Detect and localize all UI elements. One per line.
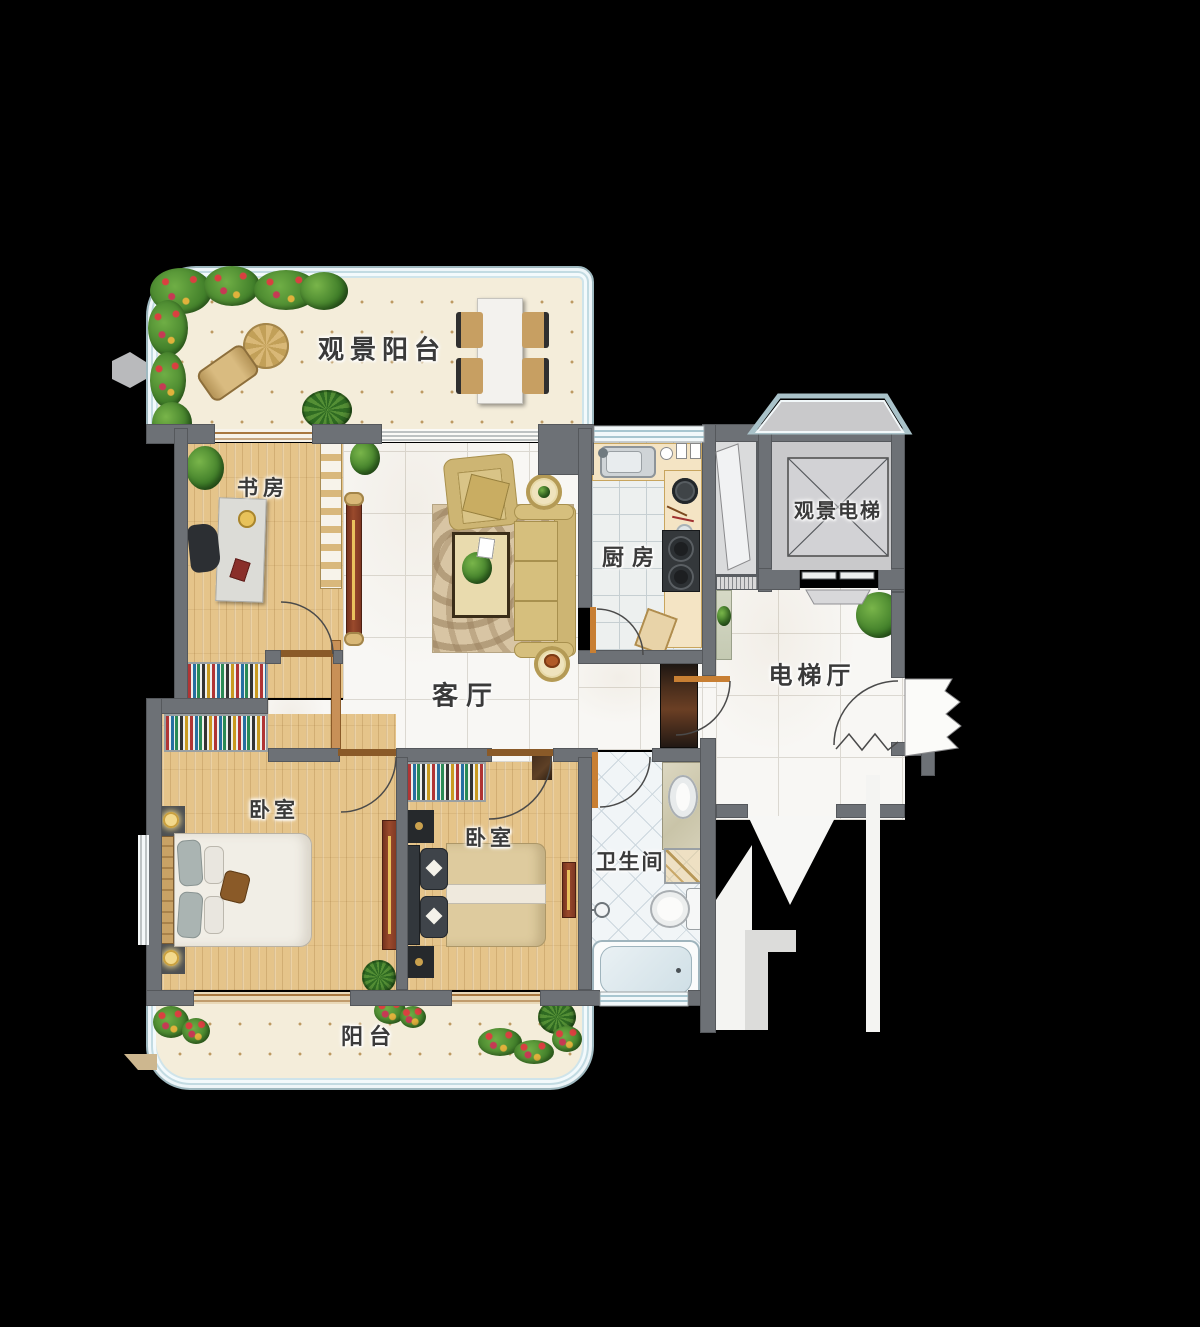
counter-board <box>690 443 701 459</box>
balcony-plant <box>204 266 260 306</box>
label-elevator-hall: 电梯厅 <box>769 656 856 691</box>
label-bedroom-left: 卧室 <box>249 794 299 824</box>
counter-board <box>676 443 687 459</box>
balcony-flowers <box>552 1026 582 1052</box>
display-cabinet <box>320 443 342 589</box>
stove-burner <box>668 536 694 562</box>
cooking-pot <box>672 478 698 504</box>
bedroom-right-bookshelf <box>406 762 486 802</box>
nightstand-lamp <box>163 950 179 966</box>
stair-shape <box>745 930 796 1030</box>
toilet-bowl <box>650 890 690 928</box>
label-balcony: 阳台 <box>341 1019 397 1051</box>
bathtub-drain <box>676 968 681 973</box>
balcony-flowers <box>400 1006 426 1028</box>
wall <box>350 990 452 1006</box>
wardrobe-gold-line <box>388 836 391 934</box>
dining-chair <box>456 358 483 394</box>
tea-table-food <box>544 654 560 668</box>
wall <box>174 428 188 708</box>
label-view-elevator: 观景电梯 <box>794 495 882 524</box>
living-corner-plant <box>350 441 380 475</box>
balcony-plant <box>300 272 348 310</box>
balcony-flowers <box>514 1040 554 1064</box>
dining-chair <box>522 312 549 348</box>
kitchen-faucet <box>598 448 608 458</box>
wall <box>758 428 905 442</box>
floor-plan: 观景阳台 书房 客厅 厨房 观景电梯 电梯厅 卧室 卧室 卫生间 阳台 <box>0 0 1200 1327</box>
tv-cabinet-gold-line <box>352 520 355 620</box>
hexagon-marker <box>112 352 146 388</box>
kitchen-window <box>594 426 704 442</box>
bedroom-left-bookshelf <box>164 714 268 752</box>
speaker <box>344 632 364 646</box>
nightstand-lamp <box>163 812 179 828</box>
wall <box>265 650 281 664</box>
wall <box>146 698 162 1006</box>
wall <box>878 568 905 590</box>
counter-bowl <box>660 447 673 460</box>
bed-pillow <box>204 896 224 934</box>
wall <box>702 424 716 676</box>
entry-shoe-cabinet <box>660 662 698 748</box>
dark-marble-pier <box>532 750 552 780</box>
bath-basin <box>668 775 698 819</box>
nightstand-knob <box>415 958 423 966</box>
desk-lamp <box>238 510 256 528</box>
cabinet-gold-line <box>567 870 570 910</box>
wall <box>396 757 408 990</box>
kitchen-sink-basin <box>606 451 642 473</box>
label-bedroom-right: 卧室 <box>465 822 515 852</box>
bed-pillow <box>176 891 203 939</box>
vent-grille <box>716 576 758 590</box>
floor-drain <box>594 902 610 918</box>
sofa-seat <box>514 561 558 601</box>
wall <box>836 804 905 818</box>
label-kitchen: 厨房 <box>602 540 662 572</box>
wall <box>921 742 935 776</box>
study-chair <box>187 523 222 574</box>
coffee-table-tray <box>477 537 496 559</box>
side-table-decor <box>538 486 550 498</box>
elevator-door-dash <box>802 572 836 579</box>
stove-burner <box>668 564 694 590</box>
sofa-seat <box>514 521 558 561</box>
dining-chair <box>522 358 549 394</box>
wall <box>578 757 592 990</box>
nightstand-knob <box>415 822 423 830</box>
wall <box>146 990 194 1006</box>
label-study: 书房 <box>237 472 289 502</box>
sofa-seat <box>514 601 558 641</box>
wall <box>758 568 800 590</box>
wall <box>891 592 905 678</box>
balcony-plant <box>150 352 186 408</box>
balcony-plant <box>148 300 188 356</box>
bed-pillow <box>176 839 203 887</box>
stair-shape <box>748 816 836 905</box>
dining-chair <box>456 312 483 348</box>
speaker <box>344 492 364 506</box>
wall <box>396 748 492 762</box>
wall <box>716 804 748 818</box>
wall <box>333 650 343 664</box>
stair-shape <box>716 845 752 1030</box>
dining-table <box>477 298 523 404</box>
wall <box>700 738 716 1033</box>
wall <box>268 748 340 762</box>
flue-shaft <box>710 440 758 576</box>
hall-sill-plant <box>717 606 731 626</box>
wall <box>312 424 382 444</box>
bay-window-outer <box>752 396 908 432</box>
bedroom-palm <box>362 960 396 994</box>
wall <box>578 428 592 608</box>
label-bathroom: 卫生间 <box>596 846 665 876</box>
shower-cabin <box>664 848 702 884</box>
study-bookshelf <box>186 662 268 702</box>
bed-runner <box>446 884 546 904</box>
label-living: 客厅 <box>432 676 500 713</box>
wall <box>540 990 600 1006</box>
wall <box>578 650 716 664</box>
elevator-door-dash <box>840 572 874 579</box>
label-view-balcony: 观景阳台 <box>318 330 446 367</box>
bed-pillow <box>204 846 224 884</box>
balcony-flowers <box>182 1018 210 1044</box>
study-plant <box>186 446 224 490</box>
wall <box>146 698 268 714</box>
